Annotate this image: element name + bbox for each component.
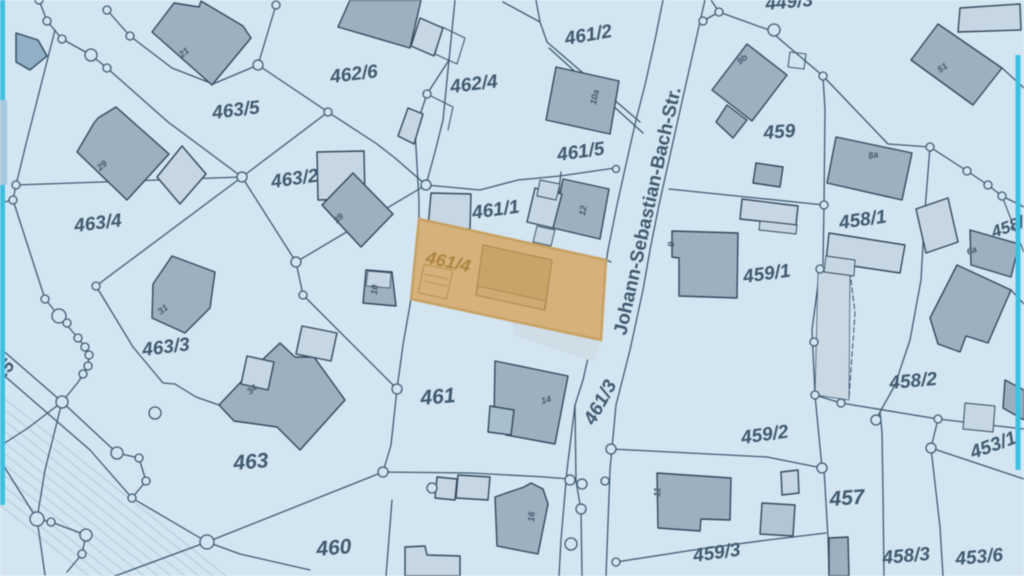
svg-text:9: 9 [666,242,676,247]
svg-text:12: 12 [577,205,589,217]
svg-text:460: 460 [314,535,352,561]
svg-text:10: 10 [369,284,380,295]
svg-text:463: 463 [231,449,269,475]
svg-text:458/2: 458/2 [888,369,939,394]
svg-text:11: 11 [652,487,662,497]
svg-text:8a: 8a [867,149,879,161]
svg-text:461: 461 [418,384,456,410]
svg-text:16: 16 [526,510,537,522]
svg-text:459: 459 [762,121,797,144]
svg-text:457: 457 [828,486,867,512]
svg-text:458/3: 458/3 [881,544,932,569]
svg-text:453/6: 453/6 [954,545,1005,570]
